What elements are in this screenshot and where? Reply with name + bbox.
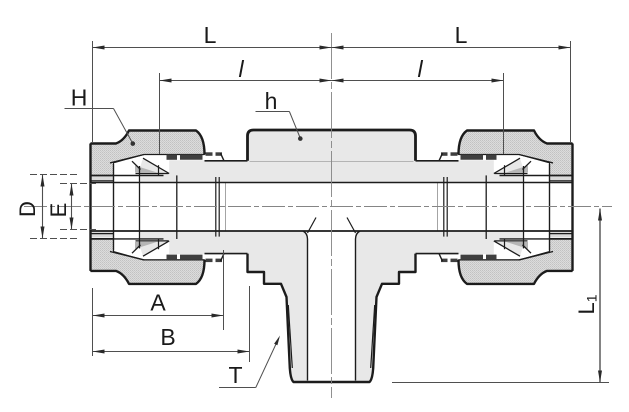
svg-text:L1: L1: [574, 294, 600, 314]
svg-text:h: h: [265, 88, 278, 114]
svg-text:H: H: [71, 85, 88, 111]
svg-text:L: L: [204, 22, 217, 48]
svg-text:D: D: [15, 201, 40, 217]
svg-text:L: L: [455, 22, 468, 48]
svg-text:E: E: [46, 203, 71, 218]
svg-text:l: l: [417, 56, 423, 82]
svg-text:A: A: [150, 290, 166, 316]
svg-text:B: B: [160, 324, 175, 350]
svg-text:l: l: [238, 56, 244, 82]
svg-text:T: T: [228, 362, 242, 388]
